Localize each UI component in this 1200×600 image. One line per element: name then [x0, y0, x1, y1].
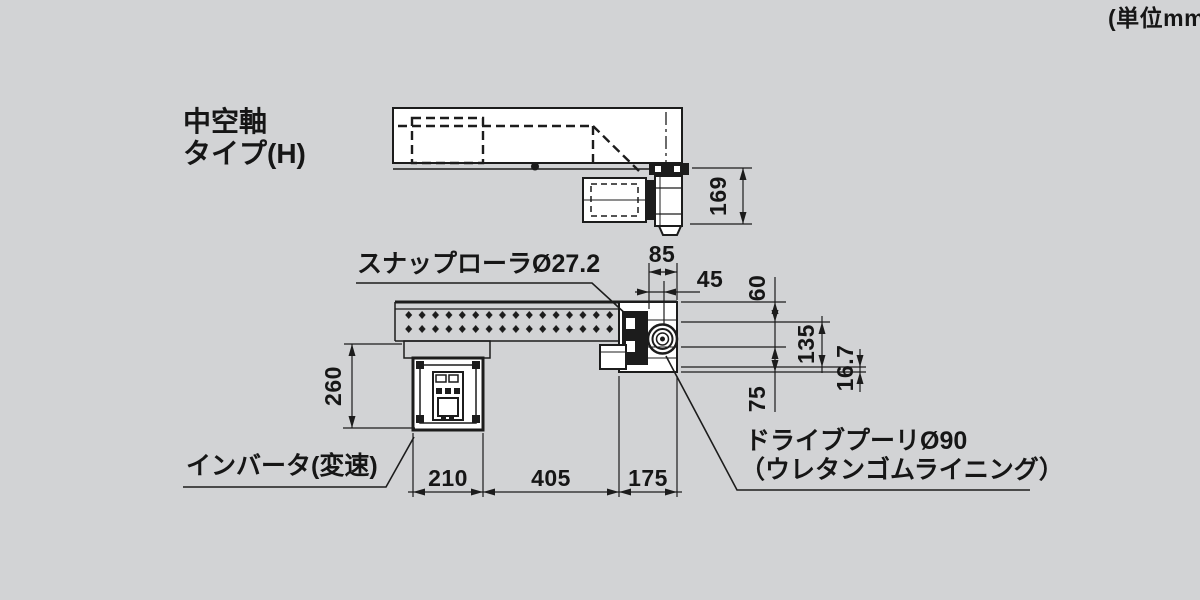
- drive-pulley-callout: ドライブプーリØ90 （ウレタンゴムライニング）: [666, 356, 1064, 490]
- technical-drawing-page: 169: [0, 0, 1200, 600]
- dim-text-85: 85: [649, 241, 676, 267]
- arrowhead: [772, 360, 779, 372]
- controller-nub: [441, 416, 446, 420]
- dim-text-260: 260: [320, 366, 346, 406]
- inverter-mount-bracket: [404, 341, 490, 358]
- arrowhead: [740, 212, 747, 224]
- bracket-bolt: [655, 166, 661, 172]
- snap-roller-bracket: [600, 345, 626, 369]
- arrowhead: [413, 489, 425, 496]
- type-label-line1: 中空軸: [183, 105, 267, 137]
- arrowhead: [819, 355, 826, 367]
- arrowhead: [664, 289, 676, 296]
- arrowhead: [349, 416, 356, 428]
- drive-pulley-label-line1: ドライブプーリØ90: [745, 426, 967, 455]
- arrowhead: [819, 322, 826, 334]
- drive-pulley-label-line2: （ウレタンゴムライニング）: [740, 455, 1064, 484]
- corner-tab: [472, 415, 480, 423]
- inverter-callout: インバータ(変速): [183, 437, 414, 487]
- controller-button: [436, 388, 442, 394]
- pivot-dot: [531, 163, 539, 171]
- bracket-bolt: [674, 166, 680, 172]
- dim-text-60: 60: [744, 275, 770, 302]
- snap-roller-label: スナップローラØ27.2: [357, 250, 600, 278]
- motor-slot: [626, 318, 635, 329]
- dim-text-135: 135: [793, 324, 819, 364]
- dimension-169: 169: [690, 168, 752, 224]
- type-label-line2: タイプ(H): [183, 138, 306, 169]
- arrowhead: [483, 489, 495, 496]
- conveyor-body: [393, 108, 682, 163]
- dimension-85: 85: [649, 241, 677, 309]
- arrowhead: [637, 289, 649, 296]
- arrowhead: [649, 269, 661, 276]
- dimension-right-stack: 60 135 16.7 75: [681, 275, 866, 413]
- snap-roller-callout: スナップローラØ27.2: [356, 250, 628, 316]
- arrowhead: [772, 347, 779, 359]
- arrowhead: [349, 344, 356, 356]
- arrowhead: [740, 168, 747, 180]
- arrowhead: [607, 489, 619, 496]
- corner-tab: [416, 361, 424, 369]
- arrowhead: [665, 269, 677, 276]
- labels: (単位mm) 中空軸 タイプ(H) スナップローラØ27.2 インバータ(変速)…: [183, 5, 1200, 490]
- coupling-plate: [646, 180, 655, 220]
- motor-slot: [626, 341, 635, 352]
- corner-tab: [472, 361, 480, 369]
- inverter-label: インバータ(変速): [186, 451, 378, 480]
- dim-text-169: 169: [705, 176, 731, 216]
- drive-pulley-shaft: [660, 337, 665, 342]
- side-view: 169: [393, 108, 752, 236]
- corner-tab: [416, 415, 424, 423]
- dim-text-405: 405: [531, 465, 571, 491]
- dim-text-175: 175: [628, 465, 668, 491]
- drawing-svg: 169: [0, 0, 1200, 600]
- pulley-bottom-cap: [659, 226, 681, 235]
- arrowhead: [471, 489, 483, 496]
- dim-text-16-7: 16.7: [832, 345, 858, 392]
- arrowhead: [772, 310, 779, 322]
- gear-head: [655, 176, 682, 226]
- dim-text-45: 45: [697, 266, 724, 292]
- controller-nub: [449, 416, 454, 420]
- belt-roller-pattern: [400, 311, 614, 339]
- dimension-260: 260: [320, 344, 415, 428]
- inverter-assembly: [404, 341, 490, 430]
- dim-text-75: 75: [744, 386, 770, 413]
- unit-note: (単位mm): [1108, 5, 1200, 31]
- dim-text-210: 210: [428, 465, 468, 491]
- controller-button: [445, 388, 451, 394]
- controller-button: [454, 388, 460, 394]
